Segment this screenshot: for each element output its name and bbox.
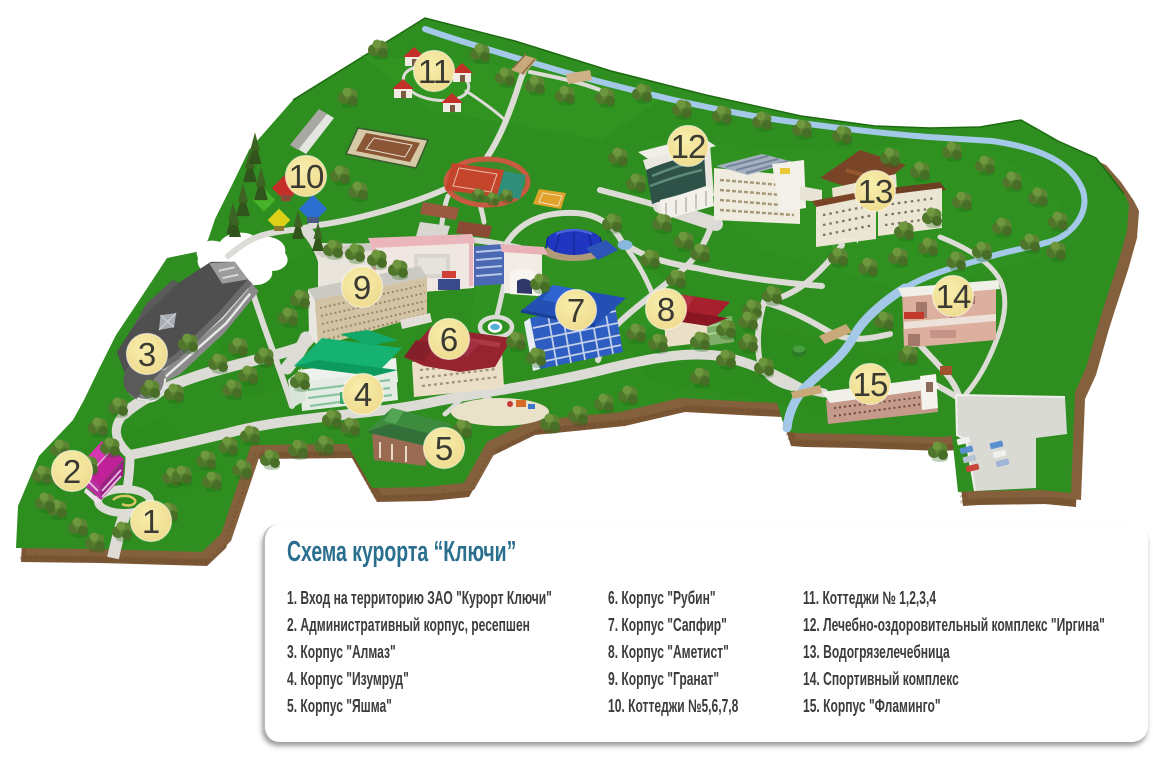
- svg-text:10: 10: [289, 158, 324, 195]
- svg-text:5: 5: [435, 430, 453, 467]
- svg-text:3: 3: [138, 336, 156, 373]
- svg-text:11: 11: [418, 53, 450, 90]
- svg-text:12: 12: [671, 128, 706, 165]
- svg-text:13: 13: [858, 173, 893, 210]
- svg-text:15: 15: [853, 366, 888, 403]
- svg-text:4: 4: [354, 376, 372, 413]
- svg-text:1: 1: [142, 503, 160, 540]
- svg-text:7: 7: [567, 292, 585, 329]
- svg-text:14: 14: [936, 278, 971, 315]
- svg-text:9: 9: [353, 269, 371, 306]
- svg-text:8: 8: [657, 291, 675, 328]
- svg-text:6: 6: [440, 321, 458, 358]
- svg-text:2: 2: [63, 453, 81, 490]
